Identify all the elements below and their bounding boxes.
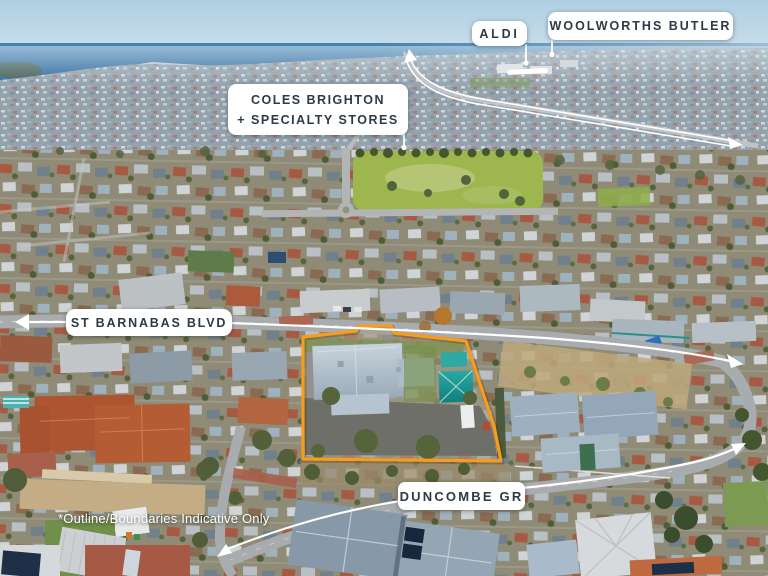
bottom-left-estate: [0, 394, 219, 576]
aerial-photo-map: ALDI WOOLWORTHS BUTLER COLES BRIGHTON + …: [0, 0, 768, 576]
label-coles-brighton: COLES BRIGHTON + SPECIALTY STORES: [228, 84, 408, 135]
label-st-barnabas-text: ST BARNABAS BLVD: [71, 316, 227, 330]
coles-pointer-dot: [401, 145, 406, 150]
label-st-barnabas-blvd: ST BARNABAS BLVD: [66, 309, 232, 336]
label-duncombe-gr: DUNCOMBE GR: [398, 482, 525, 510]
label-woolworths-text: WOOLWORTHS BUTLER: [550, 19, 732, 33]
label-aldi: ALDI: [472, 21, 527, 46]
aldi-pointer-dot: [523, 60, 528, 65]
boundary-disclaimer: *Outline/Boundaries Indicative Only: [58, 511, 270, 526]
park: [353, 148, 543, 211]
label-coles-line2: + SPECIALTY STORES: [237, 110, 398, 130]
label-aldi-text: ALDI: [479, 27, 519, 41]
label-woolworths-butler: WOOLWORTHS BUTLER: [548, 12, 733, 40]
label-coles-line1: COLES BRIGHTON: [251, 90, 385, 110]
label-duncombe-text: DUNCOMBE GR: [400, 489, 524, 504]
woolworths-pointer-dot: [549, 52, 554, 57]
